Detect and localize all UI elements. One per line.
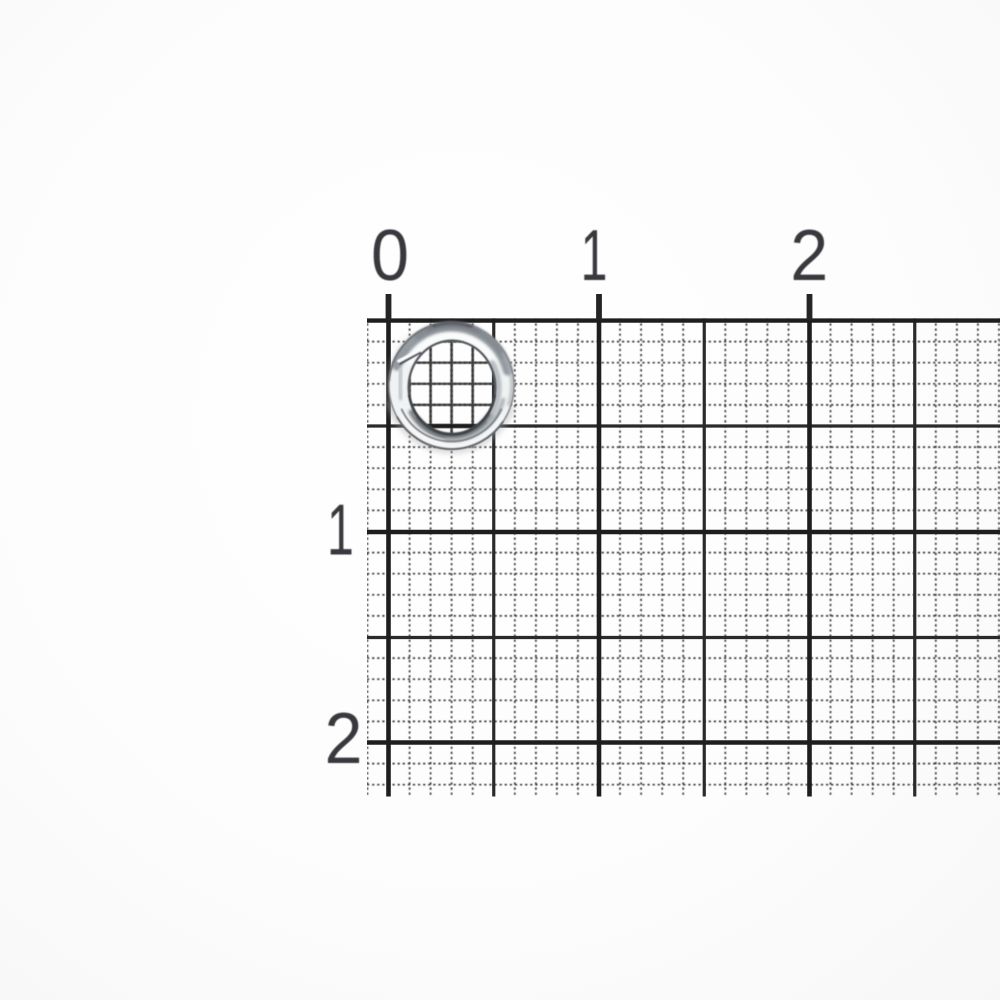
svg-text:0: 0 xyxy=(371,216,409,296)
svg-text:1: 1 xyxy=(327,491,354,571)
svg-text:2: 2 xyxy=(790,216,828,296)
svg-text:1: 1 xyxy=(581,216,608,296)
svg-text:2: 2 xyxy=(325,699,363,779)
